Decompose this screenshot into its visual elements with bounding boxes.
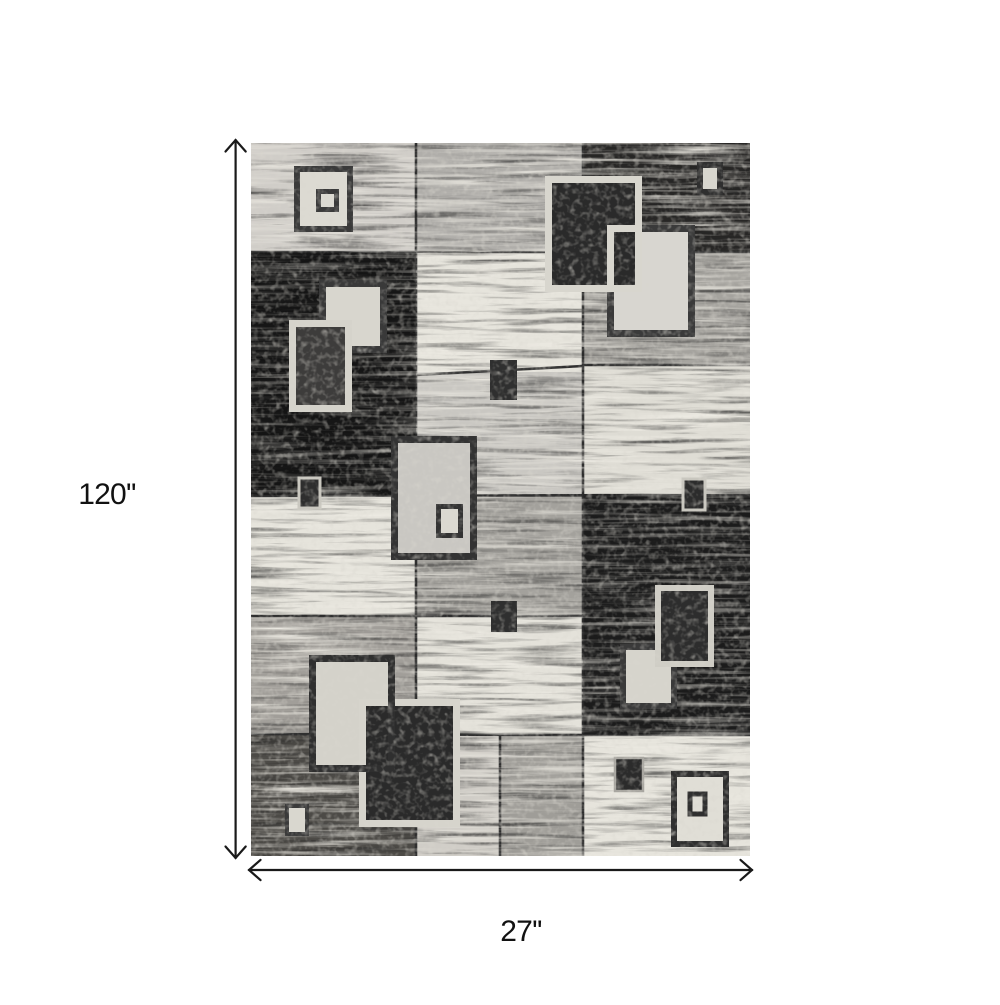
svg-text:120'': 120'' <box>78 478 136 511</box>
svg-text:27'': 27'' <box>500 915 542 948</box>
